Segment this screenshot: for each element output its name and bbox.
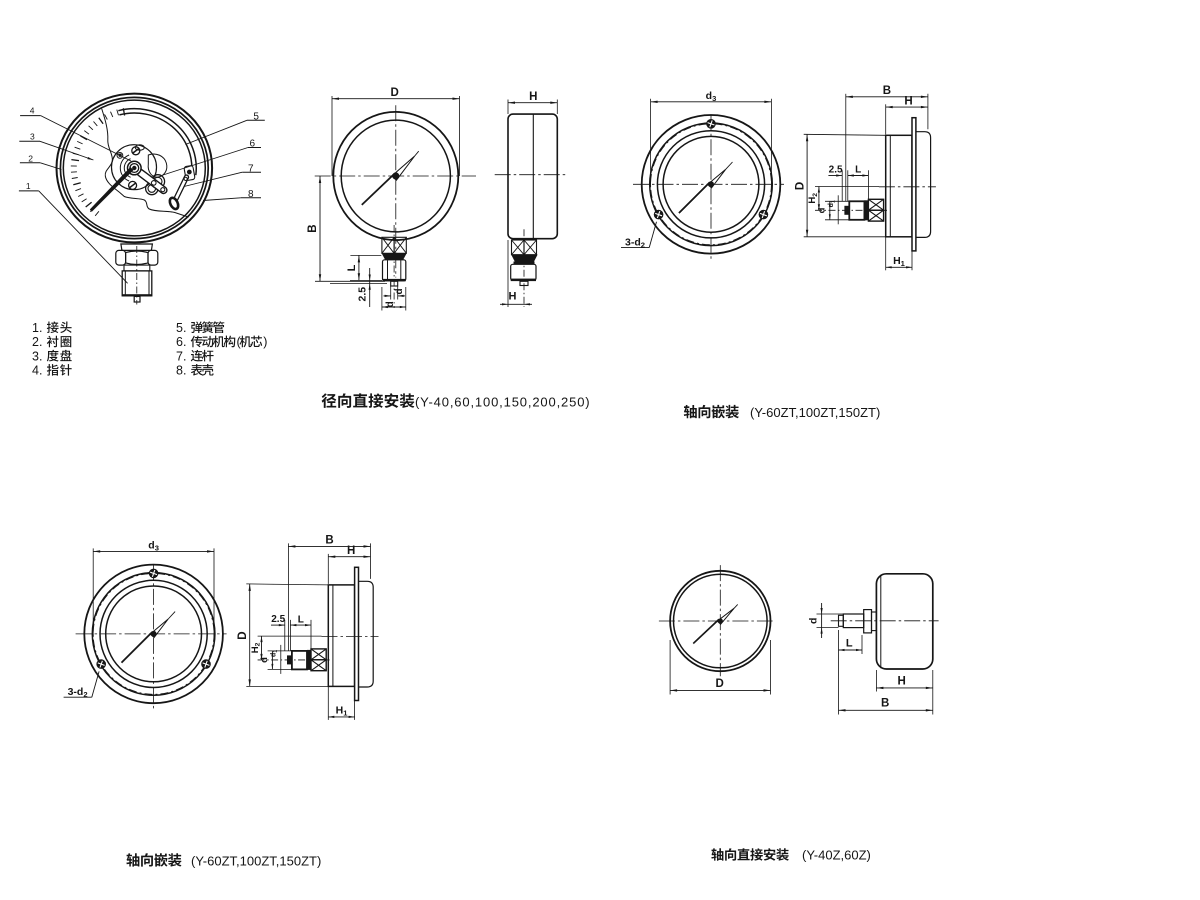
svg-text:d: d [817, 207, 828, 213]
svg-text:d: d [394, 288, 405, 294]
svg-text:6.: 6. [176, 335, 186, 349]
svg-text:8.: 8. [176, 364, 186, 378]
svg-text:L: L [346, 264, 358, 271]
svg-text:4.: 4. [32, 364, 42, 378]
svg-text:d: d [259, 657, 270, 663]
svg-text:H: H [509, 291, 517, 303]
svg-text:3.: 3. [32, 349, 42, 363]
svg-text:7: 7 [248, 164, 254, 175]
svg-text:d: d [807, 618, 819, 624]
svg-text:1: 1 [26, 181, 31, 191]
svg-text:2.: 2. [32, 335, 42, 349]
svg-text:B: B [881, 698, 889, 710]
svg-text:D: D [391, 87, 399, 99]
svg-text:L: L [846, 637, 853, 649]
svg-text:B: B [325, 535, 333, 547]
svg-text:H: H [904, 95, 912, 107]
svg-text:D: D [716, 678, 724, 690]
svg-text:(Y-60ZT,100ZT,150ZT): (Y-60ZT,100ZT,150ZT) [191, 853, 321, 868]
svg-text:1.: 1. [32, 321, 42, 335]
svg-text:L: L [298, 614, 304, 625]
svg-text:2.5: 2.5 [271, 614, 285, 625]
svg-text:(Y-40,60,100,150,200,250): (Y-40,60,100,150,200,250) [415, 395, 590, 410]
svg-text:2: 2 [28, 153, 33, 163]
svg-text:B: B [307, 224, 319, 232]
svg-text:2.5: 2.5 [829, 165, 843, 176]
svg-text:): ) [263, 335, 267, 349]
svg-text:(Y-40Z,60Z): (Y-40Z,60Z) [802, 848, 871, 863]
svg-text:2.5: 2.5 [356, 287, 368, 302]
svg-text:B: B [883, 85, 891, 97]
svg-text:L: L [855, 165, 861, 176]
svg-text:d: d [385, 301, 396, 307]
svg-text:D: D [794, 182, 806, 190]
svg-text:4: 4 [30, 106, 35, 116]
svg-text:8: 8 [248, 189, 254, 200]
svg-text:H: H [529, 91, 537, 103]
svg-text:D: D [237, 631, 249, 639]
svg-text:H: H [347, 545, 355, 557]
svg-text:7.: 7. [176, 349, 186, 363]
svg-text:5.: 5. [176, 321, 186, 335]
svg-text:H: H [898, 676, 906, 688]
svg-text:3: 3 [30, 132, 35, 142]
svg-text:(Y-60ZT,100ZT,150ZT): (Y-60ZT,100ZT,150ZT) [750, 405, 880, 420]
